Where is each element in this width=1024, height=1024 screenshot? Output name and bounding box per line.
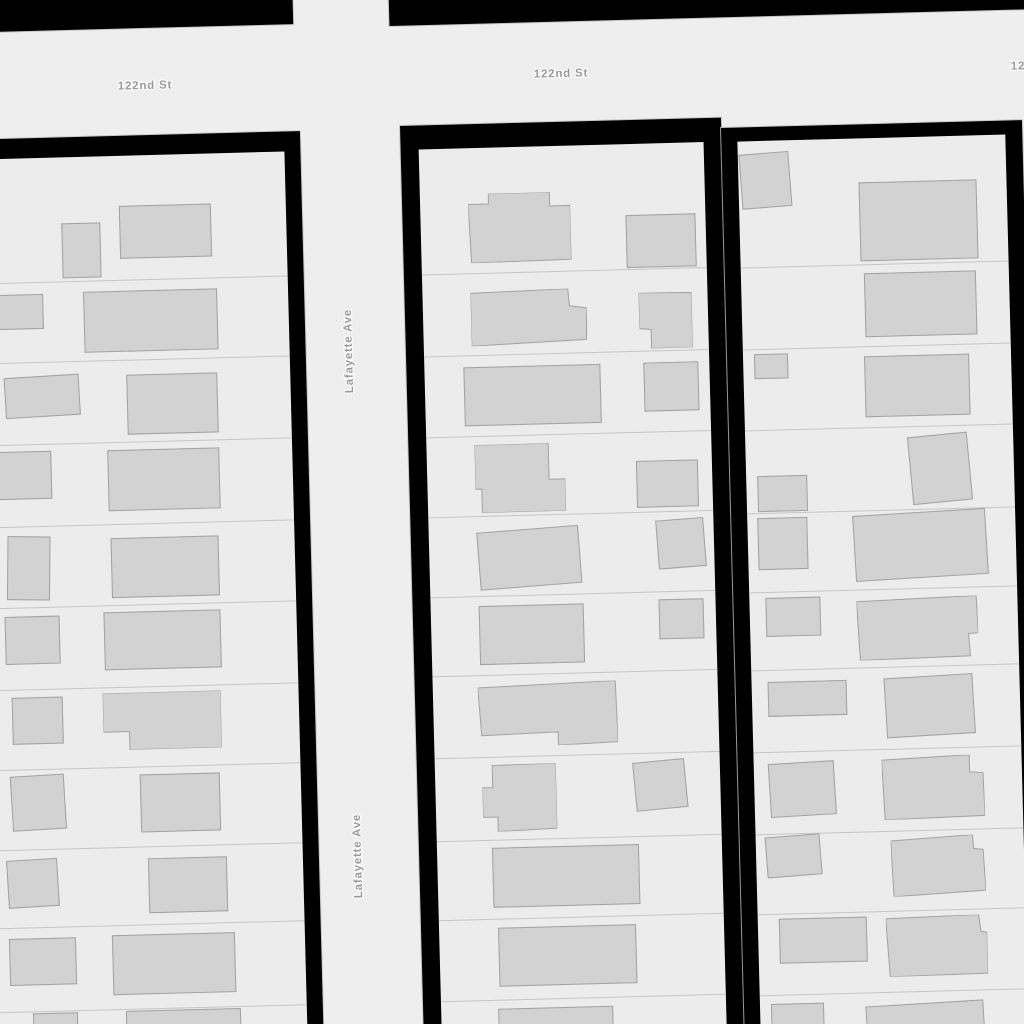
building-footprint xyxy=(864,354,971,418)
building-footprint xyxy=(474,443,566,513)
building-footprint xyxy=(140,772,221,832)
building-footprint xyxy=(492,844,641,908)
building-footprint xyxy=(470,288,587,346)
city-block-west-block xyxy=(0,131,326,1024)
building-footprint xyxy=(148,856,228,913)
building-footprint xyxy=(891,834,987,896)
building-footprint xyxy=(107,447,221,511)
building-footprint xyxy=(479,603,586,665)
building-footprint xyxy=(103,690,222,750)
building-footprint xyxy=(61,222,101,278)
city-block-east-block xyxy=(721,120,1024,1024)
building-footprint xyxy=(757,517,808,570)
building-footprint xyxy=(4,374,81,420)
building-footprint xyxy=(765,597,821,637)
building-footprint xyxy=(103,609,221,670)
building-footprint xyxy=(883,673,975,738)
building-footprint xyxy=(33,1012,79,1024)
building-footprint xyxy=(643,361,699,411)
building-footprint xyxy=(907,432,973,505)
building-footprint xyxy=(126,1008,242,1024)
block-parcels xyxy=(419,142,728,1024)
building-footprint xyxy=(768,680,848,717)
building-footprint xyxy=(768,760,837,818)
building-footprint xyxy=(858,179,978,261)
building-footprint xyxy=(0,294,44,331)
building-footprint xyxy=(864,270,978,337)
building-footprint xyxy=(771,1003,825,1024)
building-footprint xyxy=(12,697,64,745)
building-footprint xyxy=(112,932,237,995)
street-label-cross: 122nd St xyxy=(118,79,173,92)
building-footprint xyxy=(498,924,637,987)
building-footprint xyxy=(765,833,823,878)
building-footprint xyxy=(498,1006,614,1024)
block-parcels xyxy=(737,135,1024,1024)
building-footprint xyxy=(852,508,989,582)
building-footprint xyxy=(779,916,868,963)
building-footprint xyxy=(655,517,707,570)
building-footprint xyxy=(482,763,558,832)
building-footprint xyxy=(463,364,601,427)
building-footprint xyxy=(856,595,979,660)
building-footprint xyxy=(754,353,789,379)
building-footprint xyxy=(757,475,808,512)
street-label-cross: 122nd St xyxy=(534,67,589,80)
street-label-avenue: Lafayette Ave xyxy=(351,814,365,899)
building-footprint xyxy=(9,937,77,986)
building-footprint xyxy=(7,536,51,600)
city-block-center-block xyxy=(400,118,745,1024)
building-footprint xyxy=(126,372,219,434)
building-footprint xyxy=(636,459,699,508)
building-footprint xyxy=(10,774,67,832)
city-block-partial xyxy=(388,0,1024,26)
block-parcels xyxy=(0,152,310,1024)
building-footprint xyxy=(658,598,704,639)
building-footprint xyxy=(632,758,688,812)
building-footprint xyxy=(119,203,212,258)
city-block-partial xyxy=(0,0,293,32)
building-footprint xyxy=(638,291,692,348)
building-footprint xyxy=(625,213,696,268)
building-footprint xyxy=(882,754,986,820)
building-footprint xyxy=(110,535,220,598)
building-footprint xyxy=(6,858,60,909)
building-footprint xyxy=(468,192,572,264)
building-footprint xyxy=(476,525,582,591)
map-canvas[interactable]: 122nd St122nd St122nd StLafayette AveLaf… xyxy=(0,0,1024,1024)
street-label-avenue: Lafayette Ave xyxy=(342,309,356,394)
building-footprint xyxy=(5,616,61,665)
building-footprint xyxy=(886,914,989,977)
building-footprint xyxy=(0,451,52,501)
building-footprint xyxy=(738,151,792,210)
building-footprint xyxy=(83,288,219,352)
street-label-cross: 122nd St xyxy=(1011,59,1024,72)
building-footprint xyxy=(478,681,619,748)
